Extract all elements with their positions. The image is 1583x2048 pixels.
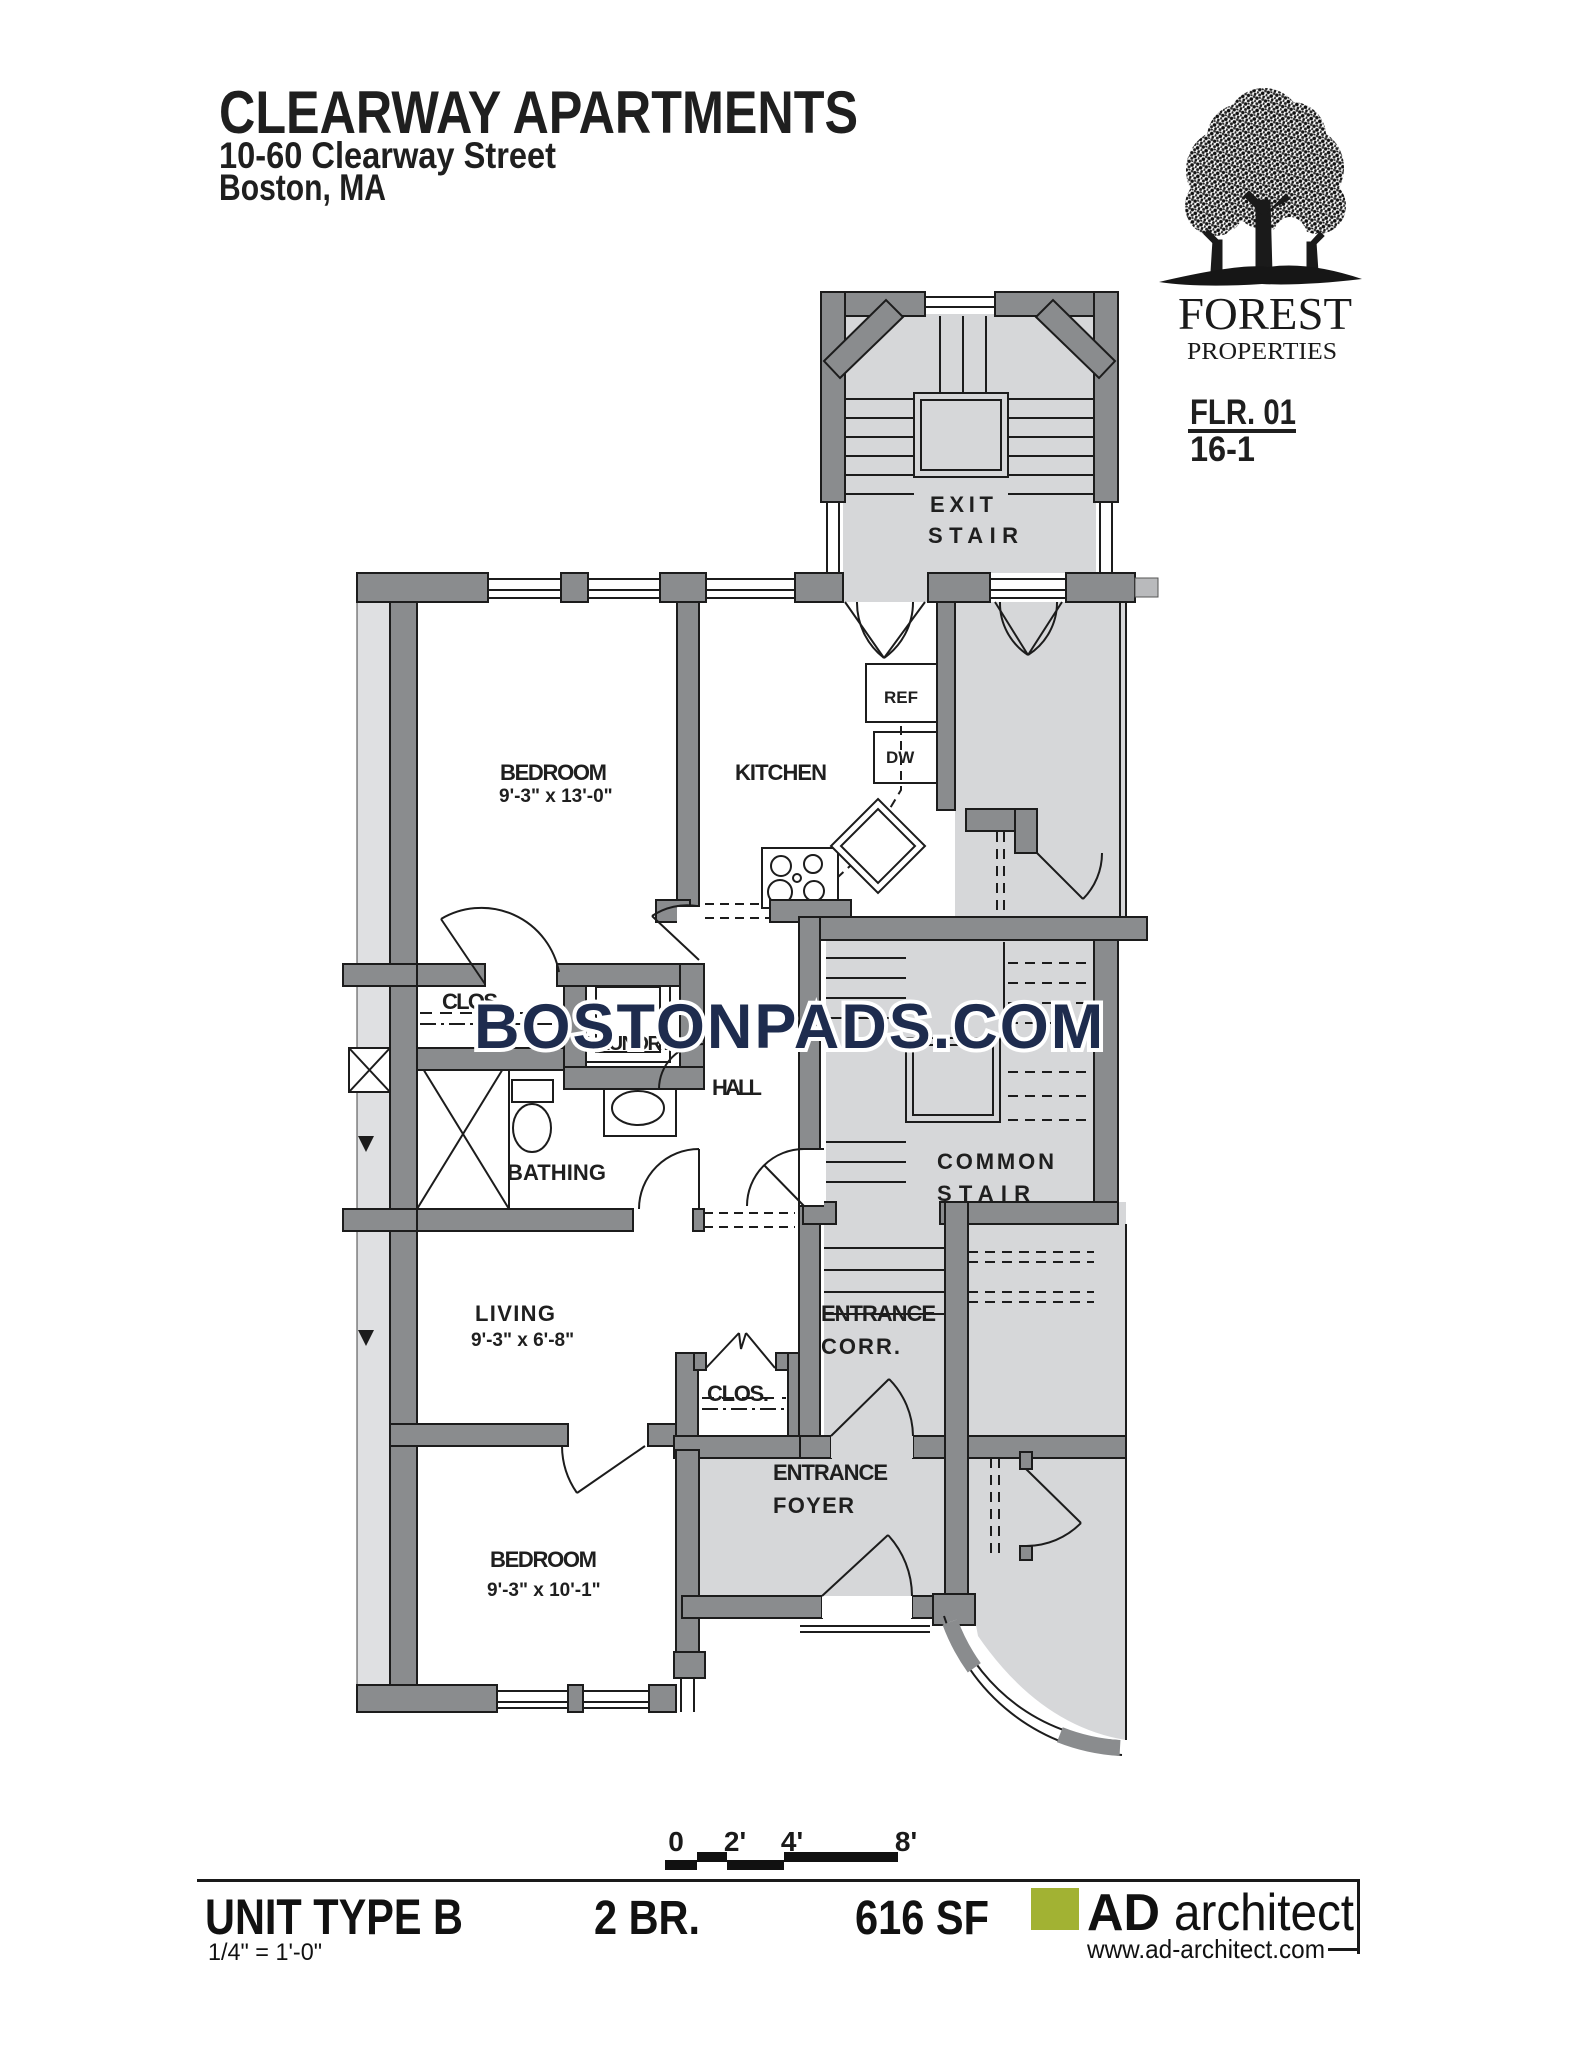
svg-text:0: 0 [668,1826,684,1857]
svg-text:2 BR.: 2 BR. [594,1892,700,1945]
svg-text:9'-3" x 10'-1": 9'-3" x 10'-1" [487,1580,601,1601]
svg-text:9'-3" x 6'-8": 9'-3" x 6'-8" [471,1330,574,1351]
svg-text:CORR.: CORR. [821,1334,900,1359]
svg-text:STAIR: STAIR [937,1181,1030,1206]
svg-text:BATHING: BATHING [507,1160,606,1185]
svg-text:EXIT: EXIT [930,492,994,517]
svg-text:9'-3" x 13'-0": 9'-3" x 13'-0" [499,786,613,807]
svg-text:REF: REF [884,688,918,707]
svg-text:LIVING: LIVING [475,1301,555,1326]
svg-text:CLOS.: CLOS. [707,1381,769,1406]
svg-text:BEDROOM: BEDROOM [500,760,607,785]
svg-text:BOSTONPADS.COM: BOSTONPADS.COM [474,992,1105,1062]
svg-text:616 SF: 616 SF [855,1892,989,1945]
svg-text:8': 8' [895,1826,917,1857]
svg-text:PROPERTIES: PROPERTIES [1187,339,1337,365]
svg-text:2': 2' [724,1826,746,1857]
svg-text:1/4" = 1'-0": 1/4" = 1'-0" [208,1939,322,1966]
svg-text:www.ad-architect.com: www.ad-architect.com [1086,1934,1325,1964]
svg-text:BEDROOM: BEDROOM [490,1547,597,1572]
svg-text:KITCHEN: KITCHEN [735,760,827,785]
svg-text:FOREST: FOREST [1178,288,1352,339]
svg-text:HALL: HALL [712,1075,762,1100]
svg-text:ENTRANCE: ENTRANCE [821,1301,936,1326]
svg-text:STAIR: STAIR [928,523,1018,548]
svg-text:UNIT TYPE B: UNIT TYPE B [205,1889,463,1945]
svg-text:16-1: 16-1 [1190,430,1255,469]
svg-text:FLR. 01: FLR. 01 [1190,393,1296,432]
svg-text:DW: DW [886,748,915,767]
svg-text:Boston, MA: Boston, MA [219,167,386,208]
svg-text:FOYER: FOYER [773,1493,854,1518]
svg-text:ENTRANCE: ENTRANCE [773,1460,888,1485]
